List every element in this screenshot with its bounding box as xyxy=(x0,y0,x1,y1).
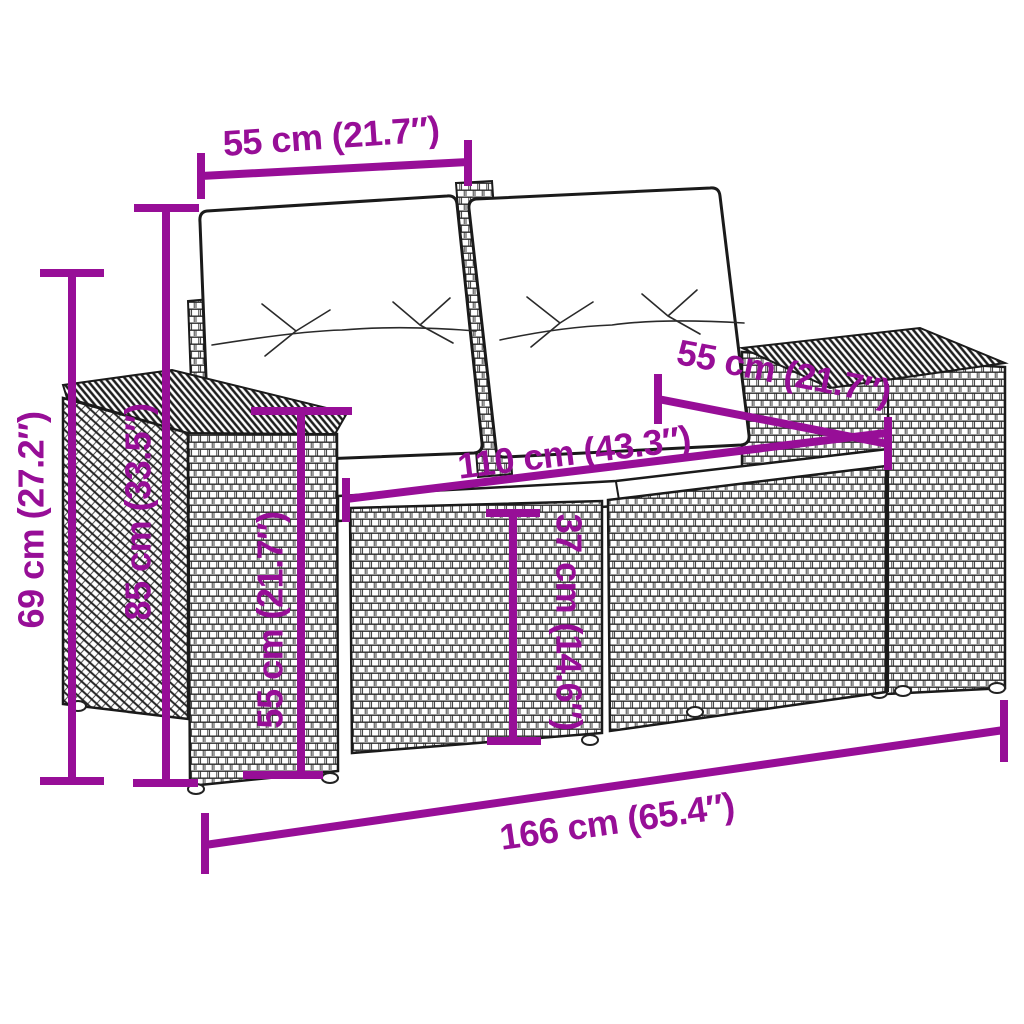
back-cushion-right xyxy=(469,188,749,457)
dim-label-height-back: 85 cm (33.5″) xyxy=(118,404,159,621)
dim-label-height-armrest: 55 cm (21.7″) xyxy=(250,512,291,729)
dimension-diagram: 55 cm (21.7″) 55 cm (21.7″) 110 cm (43.3… xyxy=(0,0,1024,1024)
dim-label-backrest-width: 55 cm (21.7″) xyxy=(221,108,440,164)
sofa-foot xyxy=(322,773,338,783)
sofa-foot xyxy=(582,735,598,745)
dim-label-height-seat: 37 cm (14.6″) xyxy=(549,514,590,731)
sofa-foot xyxy=(687,707,703,717)
sofa-foot xyxy=(895,686,911,696)
dim-backrest-width: 55 cm (21.7″) xyxy=(201,108,468,199)
diagram-canvas: 55 cm (21.7″) 55 cm (21.7″) 110 cm (43.3… xyxy=(0,0,1024,1024)
sofa-illustration xyxy=(63,181,1005,794)
sofa-foot xyxy=(989,683,1005,693)
seat-front-right xyxy=(608,466,886,731)
dim-label-height-total: 69 cm (27.2″) xyxy=(11,412,52,629)
